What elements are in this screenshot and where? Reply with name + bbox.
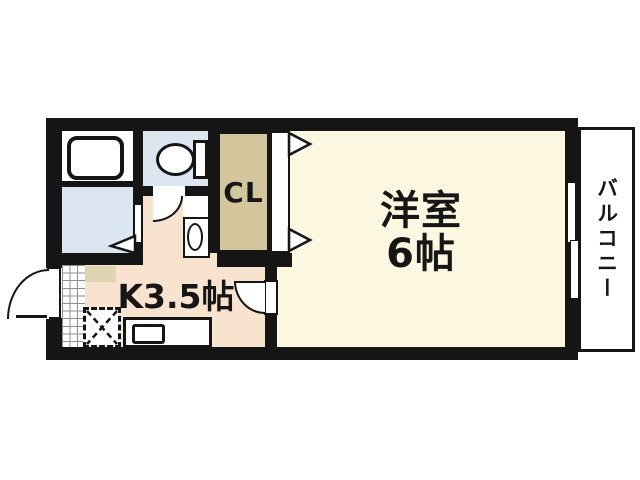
entrance-door-leaf: [47, 267, 61, 319]
western-room-name: 洋室: [321, 190, 521, 233]
wall-left-lower: [46, 318, 62, 360]
wall-bath-toilet: [133, 131, 143, 186]
toilet-tank-icon: [193, 140, 208, 179]
balcony-label: バルコニー: [592, 177, 622, 302]
entrance-door-swing: [7, 269, 49, 319]
balcony-area: バルコニー: [578, 127, 635, 352]
closet-door-swing-icons: [286, 130, 314, 256]
western-room-size: 6帖: [321, 233, 521, 276]
washbasin-icon: [187, 223, 203, 251]
tiled-entrance: [62, 265, 85, 347]
western-room-label: 洋室 6帖: [321, 190, 521, 276]
wall-left-upper: [46, 118, 62, 268]
sliding-window-sash-upper: [567, 182, 576, 243]
wall-bath-washroom: [62, 181, 135, 187]
kitchen-label: K3.5帖: [106, 270, 246, 318]
closet-label: CL: [217, 170, 270, 215]
kitchen-sink-icon: [132, 324, 165, 344]
wall-below-closet: [217, 253, 292, 267]
washbasin-unit: [183, 217, 210, 258]
wall-bottom: [46, 347, 578, 360]
kitchen-counter: [123, 317, 212, 348]
sliding-window-sash-lower: [570, 240, 579, 299]
wall-toilet-closet: [208, 131, 217, 253]
toilet-bowl-icon: [156, 143, 195, 176]
kitchen-door-leaf: [264, 280, 278, 315]
washroom-door-swing-icon: [108, 233, 139, 256]
toilet-doorway: [153, 186, 185, 196]
entrance-threshold: [16, 315, 47, 318]
bathtub-icon: [67, 136, 124, 180]
